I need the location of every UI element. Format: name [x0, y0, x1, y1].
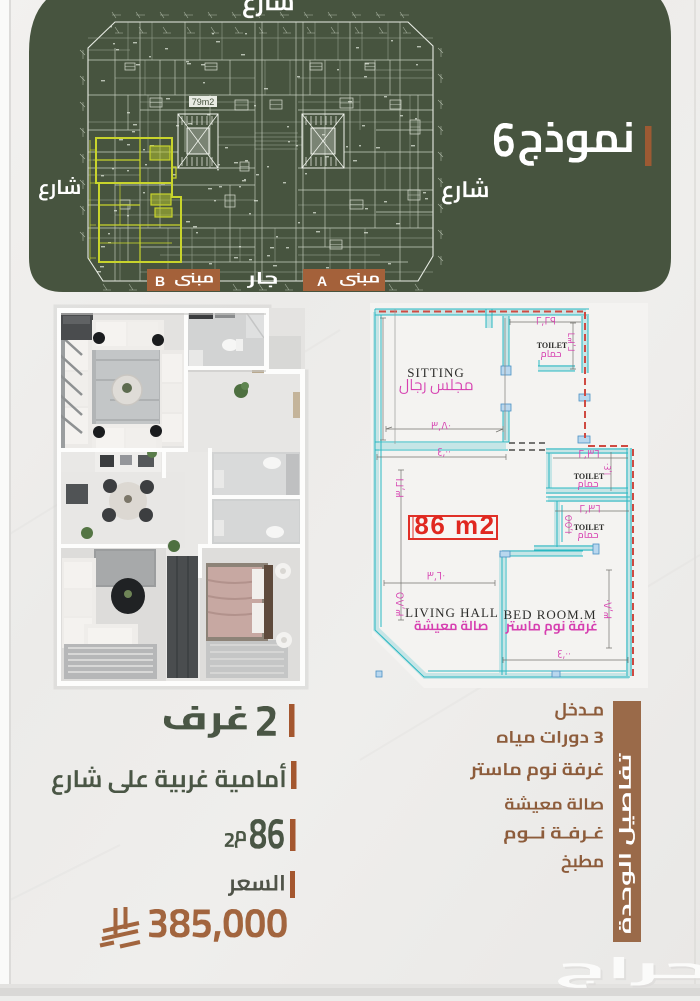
svg-text:LIVING HALL: LIVING HALL [405, 605, 499, 620]
svg-text:TOILET: TOILET [574, 472, 605, 481]
svg-text:A: A [317, 273, 327, 289]
svg-text:TOILET: TOILET [574, 523, 605, 532]
svg-text:SITTING: SITTING [407, 365, 465, 380]
svg-text:86 m2: 86 m2 [414, 510, 495, 540]
svg-text:B: B [155, 273, 165, 289]
svg-text:79m2: 79m2 [192, 97, 215, 107]
svg-text:TOILET: TOILET [537, 341, 568, 350]
svg-text:BED ROOM.M: BED ROOM.M [503, 607, 596, 622]
